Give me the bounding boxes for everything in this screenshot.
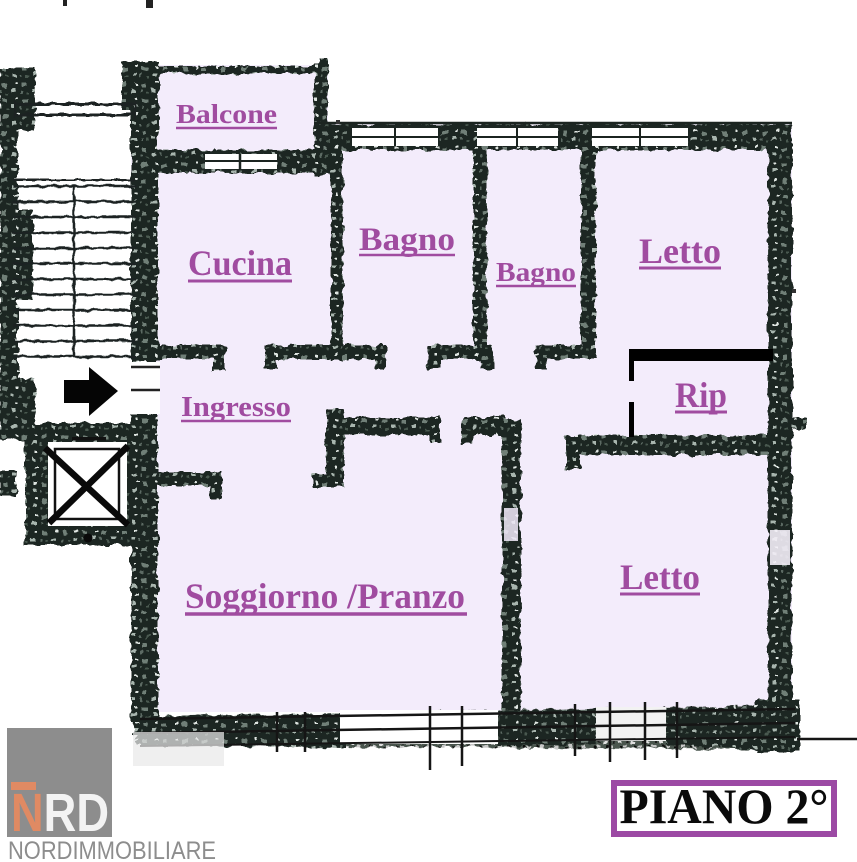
svg-text:NORDIMMOBILIARE: NORDIMMOBILIARE xyxy=(8,837,216,862)
svg-text:Balcone: Balcone xyxy=(176,99,277,129)
svg-text:PIANO 2°: PIANO 2° xyxy=(620,778,829,834)
svg-text:Bagno: Bagno xyxy=(359,222,455,258)
svg-text:Cucina: Cucina xyxy=(188,243,292,283)
svg-text:Ingresso: Ingresso xyxy=(181,391,291,423)
svg-text:Rip: Rip xyxy=(675,375,727,415)
svg-text:Soggiorno /Pranzo: Soggiorno /Pranzo xyxy=(185,576,465,616)
svg-text:Bagno: Bagno xyxy=(496,257,576,287)
svg-text:Letto: Letto xyxy=(639,231,721,271)
svg-text:Letto: Letto xyxy=(620,557,700,597)
svg-text:NRD: NRD xyxy=(11,783,109,843)
